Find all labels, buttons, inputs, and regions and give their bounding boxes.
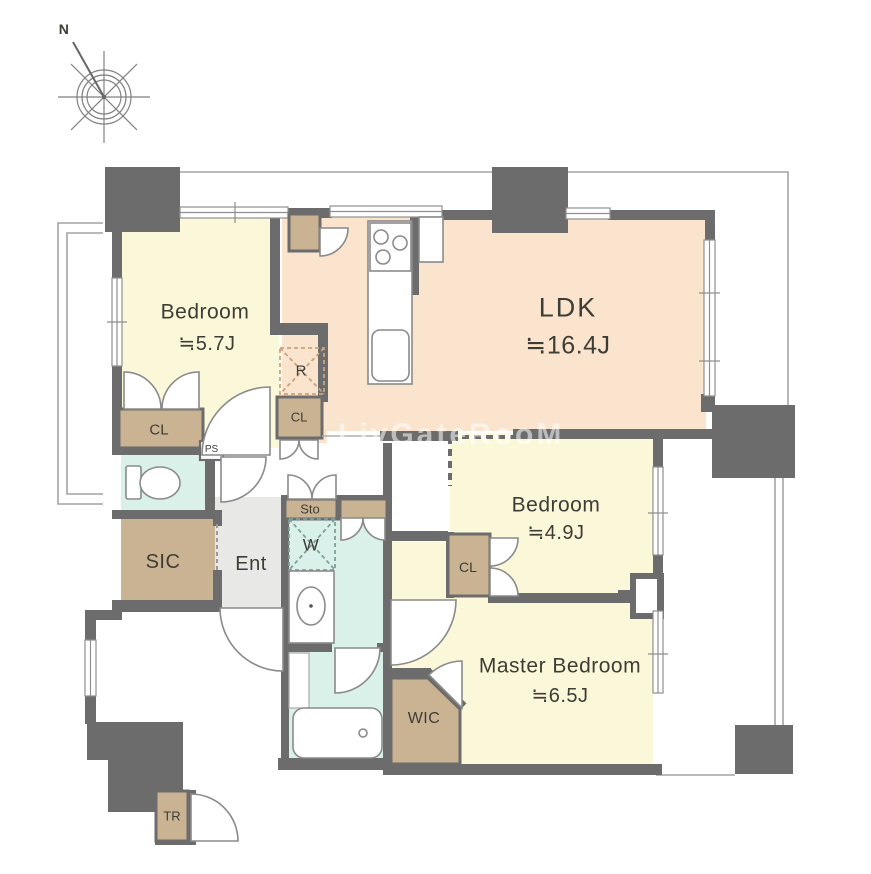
bedroom1-area: ≒5.7J [178,334,235,354]
floor-plan: LivGateRooM N Bedroom ≒5.7J LDK ≒16.4J B… [0,0,871,874]
master-bedroom-area: ≒6.5J [531,686,588,706]
toilet-bowl [140,467,180,499]
pillar-top-center [492,167,568,233]
pillar-right-upper [712,405,795,478]
entry-door [220,608,283,671]
ldk-area: ≒16.4J [525,334,610,359]
stove-burner-2 [393,236,407,250]
balcony-left-inner [67,233,103,494]
balcony-left-outer [58,223,103,504]
toilet-tank [126,466,141,499]
cl3-label: CL [459,560,477,574]
bath-counter [289,653,309,708]
stove-burner-3 [376,250,390,264]
master-bedroom-name: Master Bedroom [479,656,641,677]
compass-north-label: N [59,22,70,36]
storage-box2 [340,499,387,519]
closet-kitchen-side [289,214,320,251]
bedroom2-area: ≒4.9J [527,523,584,543]
pipe-niche [636,579,657,613]
sto-label: Sto [300,503,320,516]
compass-rose [58,42,150,143]
bathtub-drain [359,729,367,737]
watermark: LivGateRooM [338,420,564,450]
stove-burner-1 [374,230,388,244]
ldk-floor [282,217,706,431]
vanity-drain [309,604,313,608]
cl1-label: CL [149,423,168,438]
cl2-door-right [299,440,318,459]
sto-door-left [288,475,312,499]
washer-label: W [303,537,320,554]
wic-label: WIC [408,711,441,727]
kitchen-sink [372,330,409,381]
bedroom1-name: Bedroom [161,302,250,323]
cl2-door-left [280,440,299,459]
entrance-label: Ent [235,554,267,574]
kitchen-counter-return [419,217,443,262]
ldk-name: LDK [539,295,598,322]
bedroom2-name: Bedroom [512,495,601,516]
sic-label: SIC [146,552,181,572]
cl2-label: CL [291,411,308,424]
pillar-right-lower [735,725,793,774]
sto-door-right [312,475,336,499]
refrigerator-label: R [296,364,307,379]
trunk-room-label: TR [163,810,180,823]
ps-label: PS [205,445,218,455]
toilet-door [221,457,266,502]
bathtub [293,708,382,758]
trunk-room-door [191,794,238,841]
